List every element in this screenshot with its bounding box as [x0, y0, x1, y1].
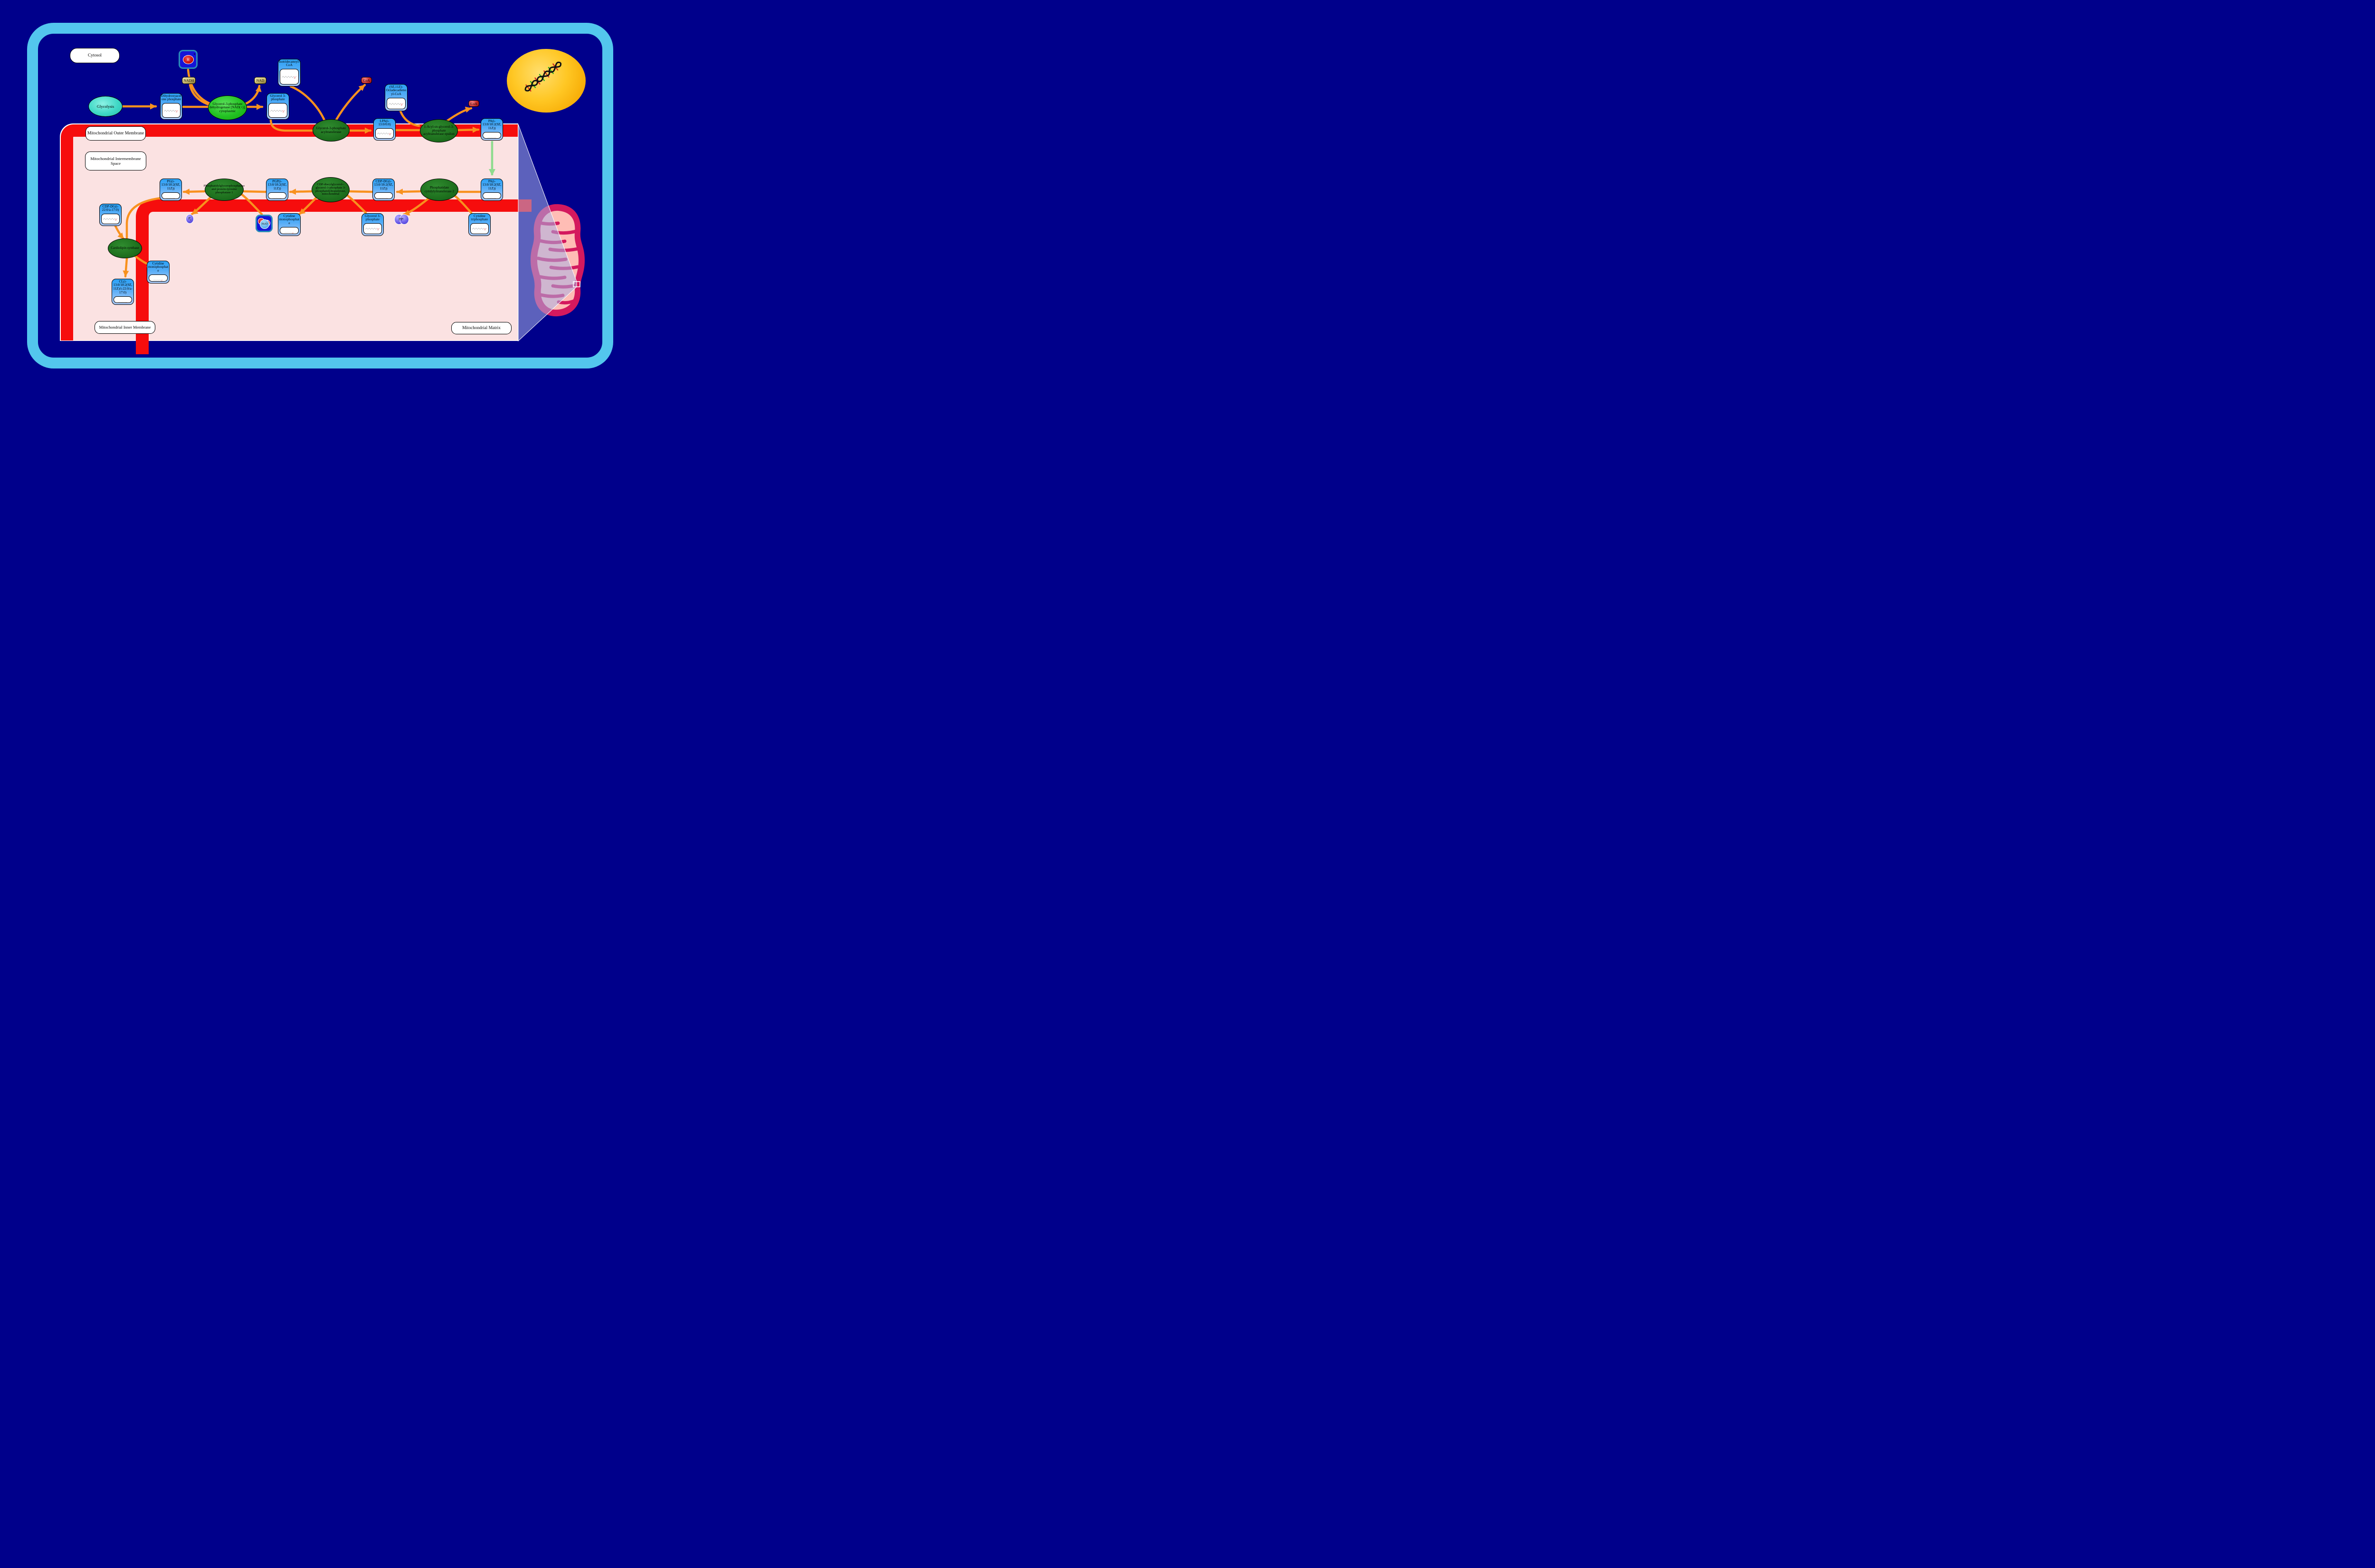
enzyme-cls[interactable]: Cardiolipin synthase: [108, 238, 142, 258]
metabolite-pa-top[interactable]: PA(i-13:0/18:2(9Z,11Z)): [481, 118, 503, 141]
metabolite-lpa[interactable]: LPA(i-13:0/0:0): [373, 118, 396, 141]
molecule-structure: [268, 192, 286, 199]
molecule-structure: [375, 128, 394, 139]
label-inner-membrane: Mitochondrial Inner Membrane: [95, 321, 155, 334]
metabolite-label: LPA(i-13:0/0:0): [374, 119, 395, 127]
water-icon: H2O: [258, 217, 270, 230]
metabolite-label: PA(i-13:0/18:2(9Z,11Z)): [481, 179, 503, 191]
metabolite-g3p-mid[interactable]: Glycerol 3-phosphate: [361, 213, 384, 236]
metabolite-label: CDP-DG(i-13:0/18:2(9Z,11Z)): [373, 179, 394, 191]
enzyme-gpd[interactable]: Glycerol-3-phosphate dehydrogenase [NAD(…: [208, 95, 247, 120]
nucleus-illustration: [507, 49, 586, 113]
chip-label: NAD: [256, 78, 264, 83]
metabolite-nadh[interactable]: NADH: [182, 77, 196, 84]
metabolite-cmp-bottom[interactable]: Cytidine monophosphate: [147, 261, 170, 283]
enzyme-label: Phosphatidate cytidylyltransferase 2: [422, 186, 457, 193]
molecule-structure: [483, 192, 501, 199]
molecule-structure: [280, 69, 299, 85]
metabolite-label: Glycerol 3-phosphate: [267, 94, 289, 102]
metabolite-cmp-mid[interactable]: Cytidine monophosphate: [278, 213, 301, 236]
metabolite-label: Cytidine triphosphate: [469, 214, 490, 222]
enzyme-label: Cardiolipin synthase: [111, 246, 139, 250]
metabolite-nad[interactable]: NAD: [254, 77, 266, 84]
metabolite-pa-bottom[interactable]: PA(i-13:0/18:2(9Z,11Z)): [481, 179, 503, 201]
metabolite-label: Cytidine monophosphate: [278, 214, 300, 226]
metabolite-coa-right[interactable]: CoA: [468, 100, 479, 107]
enzyme-ptpmt1[interactable]: Phosphatidylglycerophosphatase and prote…: [205, 179, 244, 201]
molecule-structure: [101, 214, 120, 224]
dna-icon: [515, 53, 577, 109]
molecule-structure: [374, 192, 393, 199]
molecule-structure: [387, 98, 406, 109]
metabolite-h2o[interactable]: H2O: [256, 215, 273, 232]
molecule-structure: [280, 227, 299, 234]
metabolite-cl[interactable]: CL(i-13:0/18:2(9Z,11Z)/i-22:0/a-17:0): [112, 279, 134, 305]
metabolite-ctp[interactable]: Cytidine triphosphate: [468, 213, 491, 236]
metabolite-pg[interactable]: PG(i-13:0/18:2(9Z,11Z)): [160, 179, 182, 201]
molecule-structure: [162, 103, 180, 118]
pathway-node-glycolysis[interactable]: Glycolysis: [88, 96, 123, 117]
metabolite-label: CDP-DG(i-22:0/a-17:0): [100, 204, 121, 213]
molecule-structure: [161, 192, 180, 199]
metabolite-pgp[interactable]: PGP(i-13:0/18:2(9Z,11Z)): [266, 179, 288, 201]
label-intermembrane-space: Mitochondrial Intermembrane Space: [85, 151, 146, 170]
metabolite-label: PGP(i-13:0/18:2(9Z,11Z)): [266, 179, 288, 191]
metabolite-label: Isotridecanoyl-CoA: [278, 59, 300, 68]
h-plus-icon: H +: [183, 55, 194, 64]
metabolite-label: PA(i-13:0/18:2(9Z,11Z)): [481, 119, 503, 131]
pathway-diagram: Glycolysis Glycerol-3-phosphate dehydrog…: [0, 0, 641, 392]
enzyme-label: CDP-diacylglycerol--glycerol-3-phosphate…: [313, 183, 348, 197]
enzyme-label: Glycerol-3-phosphate acyltransferase: [314, 127, 348, 134]
chip-label: CoA: [363, 78, 370, 83]
enzyme-pcyt2[interactable]: Phosphatidate cytidylyltransferase 2: [420, 179, 458, 201]
metabolite-label: Glycerol 3-phosphate: [362, 214, 383, 222]
metabolite-coa-top[interactable]: CoA: [361, 77, 372, 84]
molecule-structure: [114, 296, 132, 303]
metabolite-label: Dihydroxyacetone phosphate: [161, 94, 182, 102]
molecule-structure: [470, 223, 489, 234]
metabolite-label: CL(i-13:0/18:2(9Z,11Z)/i-22:0/a-17:0): [112, 279, 133, 295]
metabolite-octadecadienoyl-coa[interactable]: (9Z,11Z)-Octadecadienoyl-CoA: [385, 84, 408, 111]
metabolite-g3p-top[interactable]: Glycerol 3-phosphate: [266, 93, 289, 120]
enzyme-label: 1-Acyl-sn-glycerol-3-phosphate acyltrans…: [421, 125, 456, 136]
molecule-structure: [149, 274, 168, 282]
enzyme-label: Glycerol-3-phosphate dehydrogenase [NAD(…: [209, 103, 246, 113]
metabolite-h-plus[interactable]: H +: [179, 50, 198, 69]
label-outer-membrane: Mitochondrial Outer Membrane: [85, 126, 146, 141]
metabolite-ppi[interactable]: PPi: [394, 214, 408, 224]
pathway-node-label: Glycolysis: [97, 104, 114, 109]
enzyme-label: Phosphatidylglycerophosphatase and prote…: [204, 185, 245, 195]
metabolite-isotridecanoyl-coa[interactable]: Isotridecanoyl-CoA: [278, 59, 301, 86]
metabolite-label: (9Z,11Z)-Octadecadienoyl-CoA: [385, 85, 407, 97]
metabolite-pi[interactable]: Pi: [186, 214, 194, 224]
metabolite-label: PG(i-13:0/18:2(9Z,11Z)): [160, 179, 181, 191]
label-matrix: Mitochondrial Matrix: [451, 322, 512, 334]
enzyme-cds[interactable]: CDP-diacylglycerol--glycerol-3-phosphate…: [312, 177, 350, 202]
label-cytosol: Cytosol: [70, 48, 120, 63]
molecule-structure: [268, 103, 287, 118]
chip-label: NADH: [184, 78, 194, 83]
mitochondrion-zoom-visual: [513, 119, 641, 366]
chip-label: CoA: [470, 102, 477, 106]
metabolite-dhap[interactable]: Dihydroxyacetone phosphate: [160, 93, 182, 120]
enzyme-agpat[interactable]: 1-Acyl-sn-glycerol-3-phosphate acyltrans…: [420, 119, 458, 142]
enzyme-gpat[interactable]: Glycerol-3-phosphate acyltransferase: [313, 119, 350, 142]
molecule-structure: [483, 132, 501, 139]
molecule-structure: [363, 223, 382, 234]
metabolite-label: Cytidine monophosphate: [147, 261, 169, 274]
metabolite-cdp-dg-left[interactable]: CDP-DG(i-22:0/a-17:0): [99, 204, 122, 226]
metabolite-cdp-dg-right[interactable]: CDP-DG(i-13:0/18:2(9Z,11Z)): [372, 179, 395, 201]
